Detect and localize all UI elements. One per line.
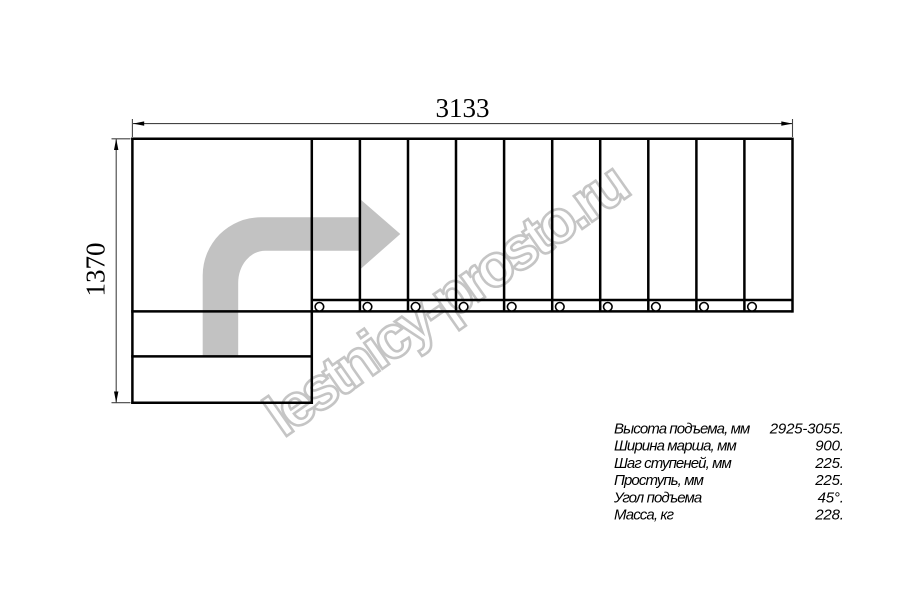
svg-text:Высота подъема, мм: Высота подъема, мм [614,420,750,437]
svg-text:1370: 1370 [81,243,111,297]
svg-text:3133: 3133 [436,93,490,123]
svg-text:45°.: 45°. [818,489,844,506]
svg-text:225.: 225. [814,472,843,489]
svg-text:Шаг ступеней, мм: Шаг ступеней, мм [614,455,732,472]
svg-text:Угол подъема: Угол подъема [613,489,702,506]
svg-text:2925-3055.: 2925-3055. [769,420,844,437]
svg-text:228.: 228. [814,507,843,524]
svg-text:225.: 225. [814,455,843,472]
svg-text:Масса, кг: Масса, кг [614,507,675,524]
svg-text:Проступь, мм: Проступь, мм [614,472,704,489]
svg-text:Ширина марша, мм: Ширина марша, мм [614,438,736,455]
svg-text:900.: 900. [815,438,843,455]
